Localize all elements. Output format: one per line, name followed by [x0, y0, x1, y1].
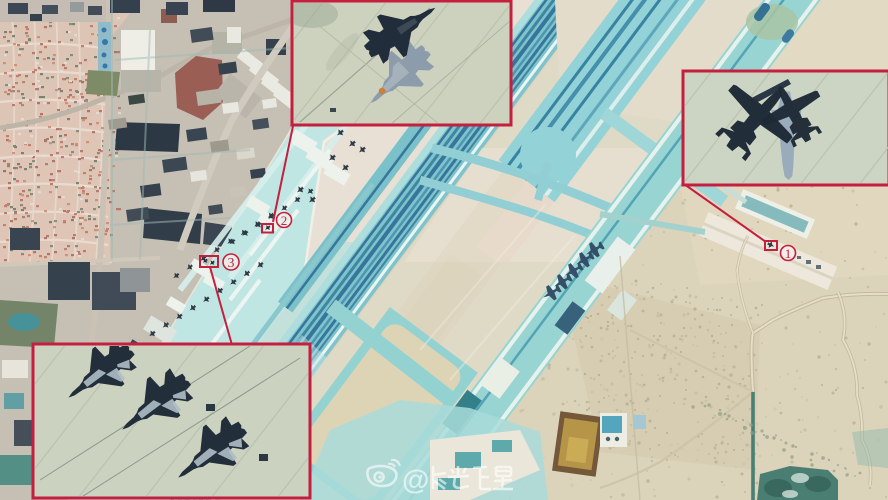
svg-text:3: 3 — [228, 256, 235, 271]
svg-text:2: 2 — [281, 213, 288, 228]
svg-text:1: 1 — [785, 246, 792, 261]
